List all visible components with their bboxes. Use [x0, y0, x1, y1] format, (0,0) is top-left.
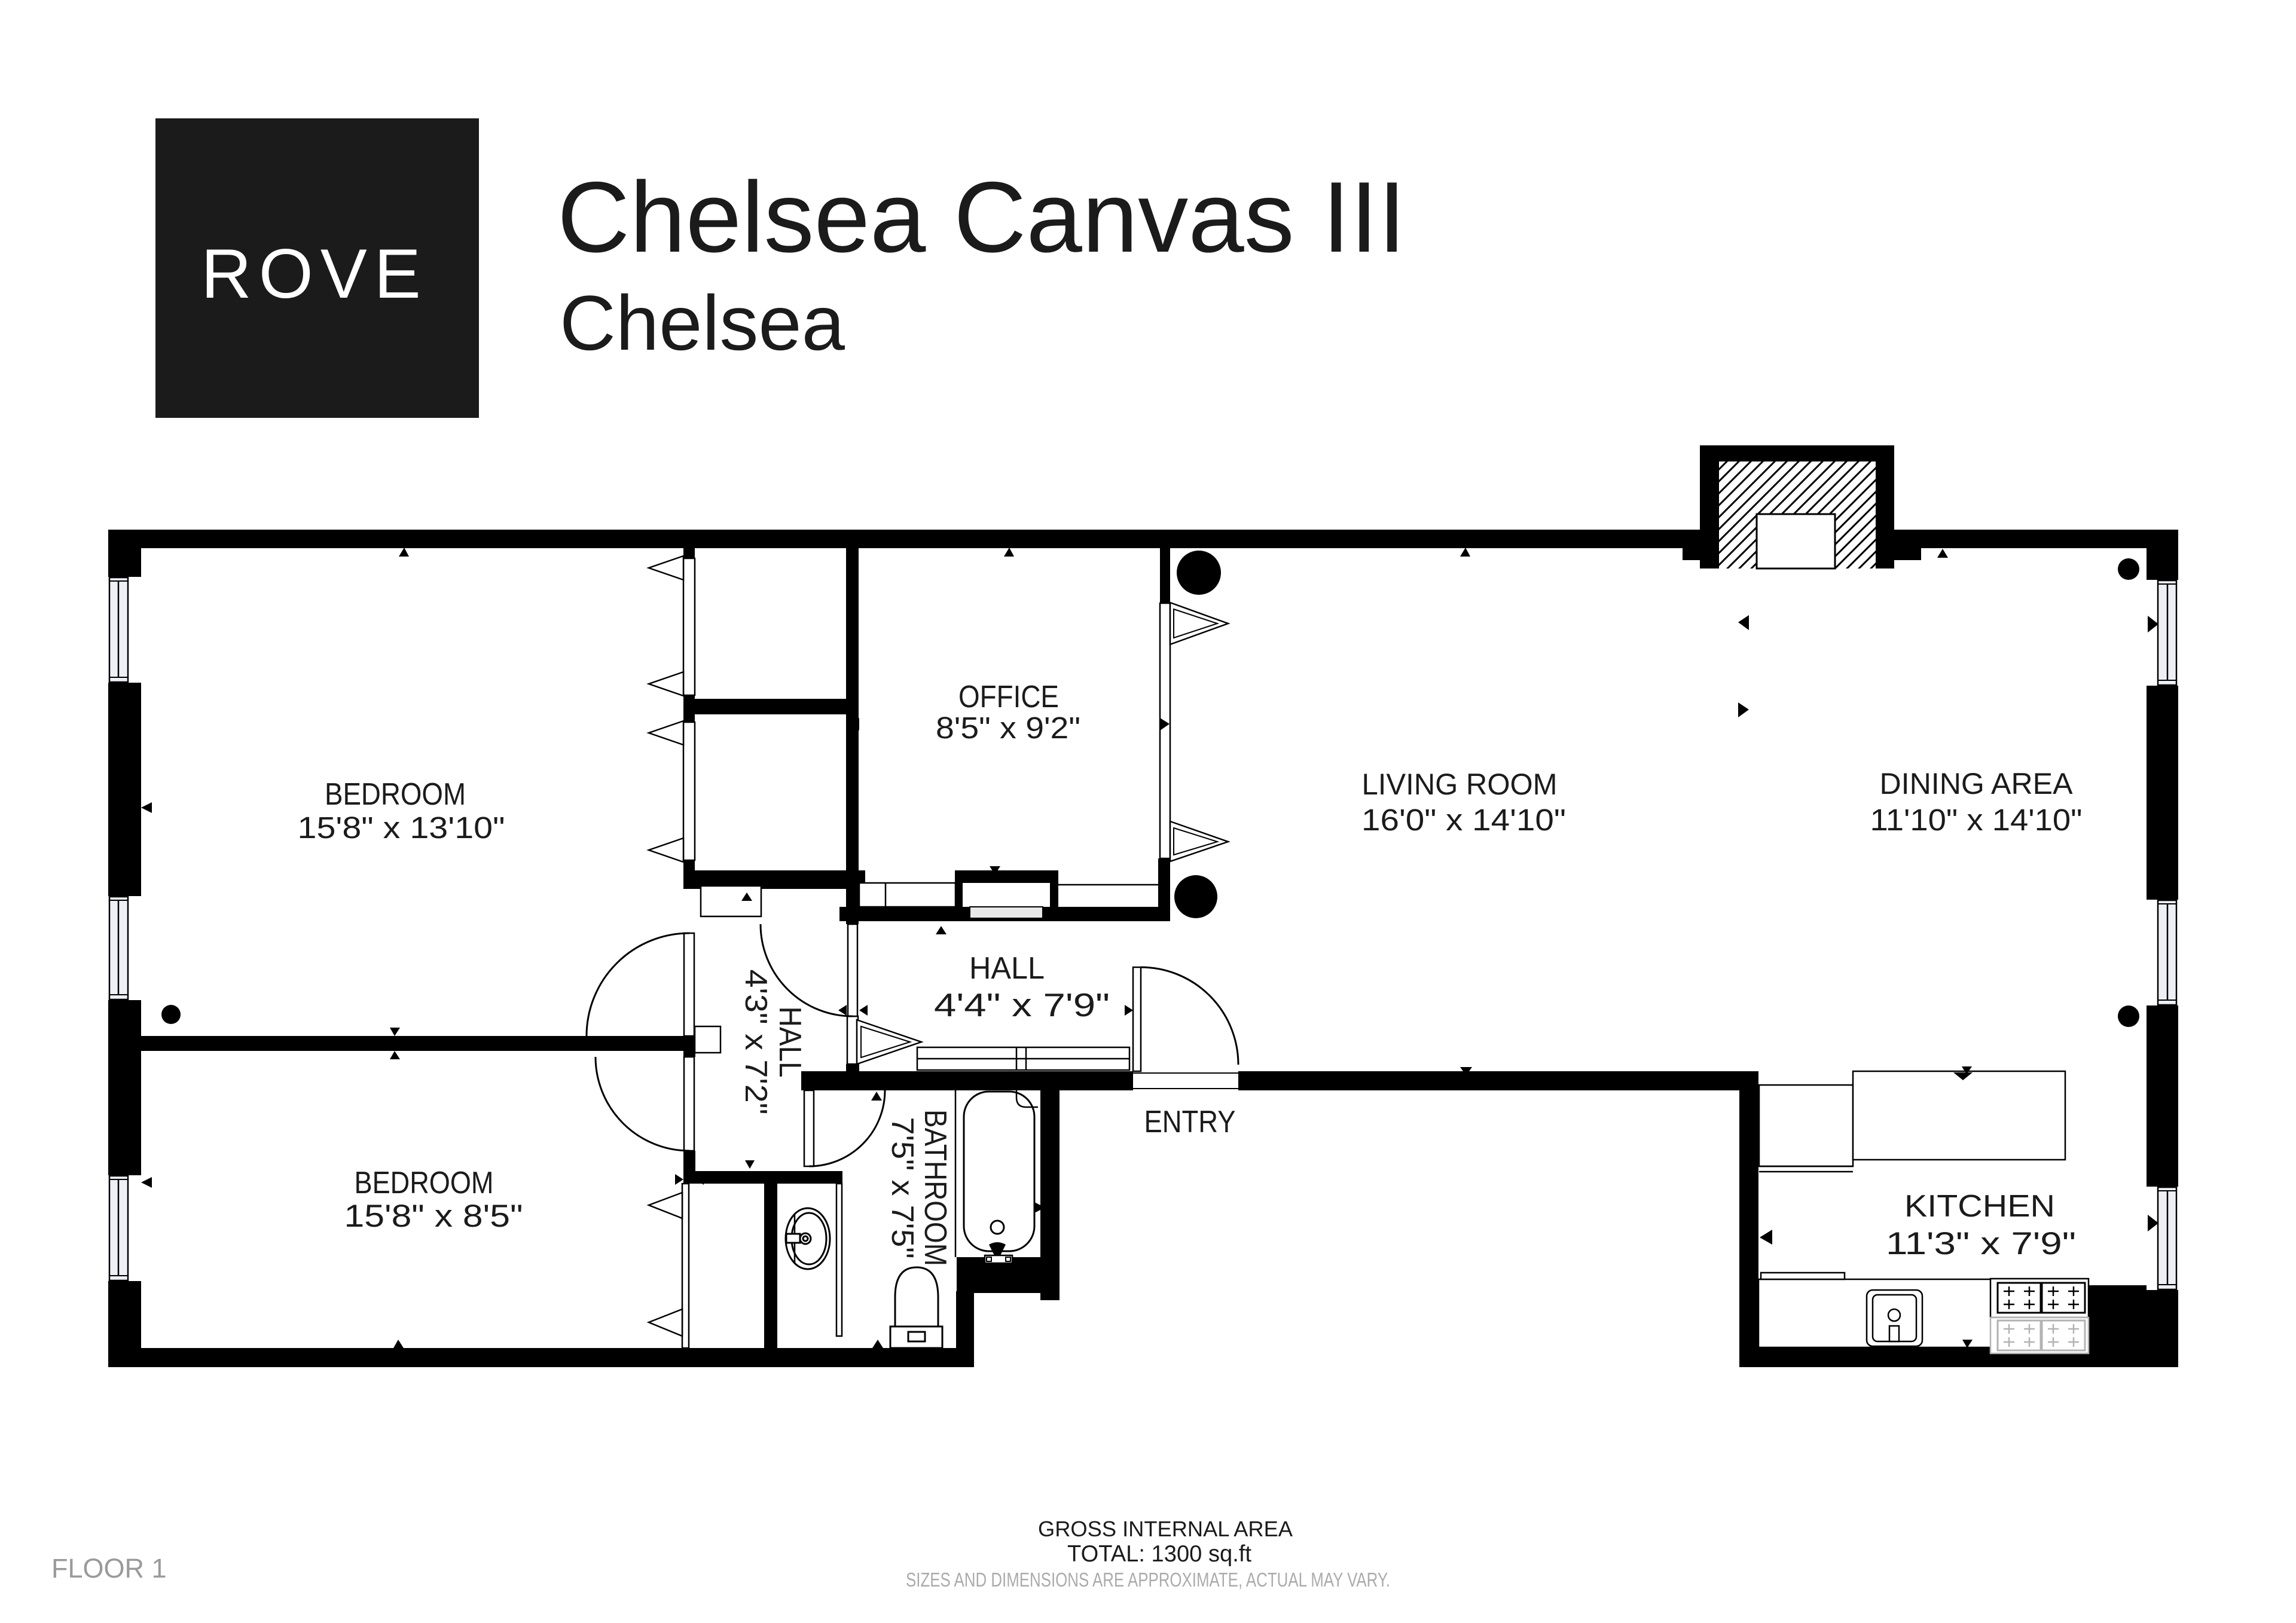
svg-text:LIVING ROOM: LIVING ROOM: [1362, 768, 1558, 801]
svg-text:7'5" x 7'5": 7'5" x 7'5": [885, 1117, 920, 1259]
svg-text:15'8" x 13'10": 15'8" x 13'10": [298, 811, 505, 845]
svg-text:HALL: HALL: [969, 951, 1045, 986]
svg-text:OFFICE: OFFICE: [958, 680, 1059, 714]
svg-text:BATHROOM: BATHROOM: [918, 1109, 952, 1266]
svg-text:KITCHEN: KITCHEN: [1904, 1189, 2055, 1224]
svg-text:TOTAL: 1300 sq.ft: TOTAL: 1300 sq.ft: [1067, 1541, 1251, 1567]
svg-text:Chelsea: Chelsea: [560, 279, 845, 366]
svg-text:GROSS INTERNAL AREA: GROSS INTERNAL AREA: [1038, 1517, 1293, 1541]
svg-text:11'3" x 7'9": 11'3" x 7'9": [1886, 1226, 2076, 1261]
svg-text:4'3" x 7'2": 4'3" x 7'2": [738, 970, 773, 1115]
svg-text:16'0" x 14'10": 16'0" x 14'10": [1361, 803, 1566, 837]
svg-text:11'10" x 14'10": 11'10" x 14'10": [1870, 803, 2083, 837]
svg-text:Chelsea Canvas III: Chelsea Canvas III: [557, 161, 1406, 273]
svg-text:8'5" x 9'2": 8'5" x 9'2": [936, 711, 1080, 745]
svg-text:ROVE: ROVE: [201, 234, 428, 313]
svg-text:HALL: HALL: [773, 1007, 807, 1078]
svg-text:ENTRY: ENTRY: [1144, 1105, 1236, 1139]
svg-text:FLOOR 1: FLOOR 1: [51, 1553, 167, 1584]
svg-text:SIZES AND DIMENSIONS ARE APPRO: SIZES AND DIMENSIONS ARE APPROXIMATE, AC…: [906, 1569, 1390, 1591]
svg-text:BEDROOM: BEDROOM: [355, 1166, 494, 1200]
svg-text:15'8" x 8'5": 15'8" x 8'5": [344, 1199, 523, 1234]
svg-text:4'4" x 7'9": 4'4" x 7'9": [934, 986, 1110, 1023]
svg-text:DINING AREA: DINING AREA: [1880, 767, 2074, 800]
svg-text:BEDROOM: BEDROOM: [325, 777, 466, 812]
